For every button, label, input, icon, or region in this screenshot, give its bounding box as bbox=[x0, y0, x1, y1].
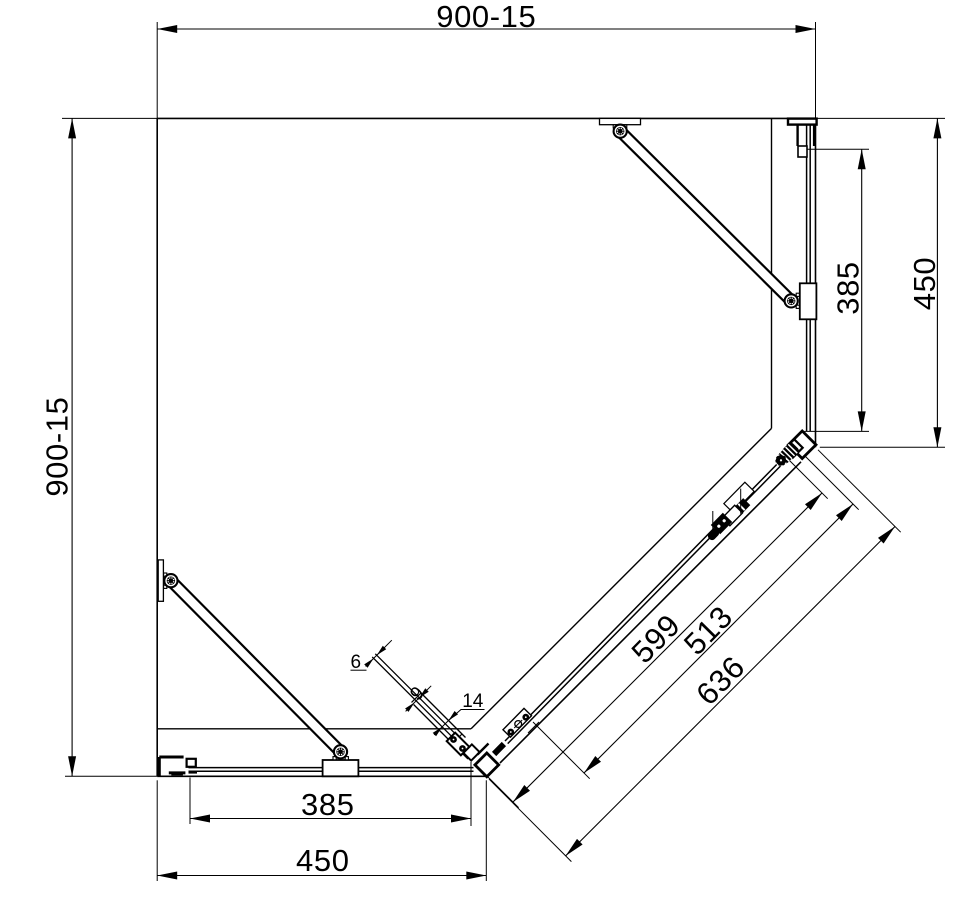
svg-text:385: 385 bbox=[831, 261, 866, 315]
svg-text:450: 450 bbox=[296, 843, 350, 878]
svg-text:14: 14 bbox=[462, 691, 484, 712]
svg-text:385: 385 bbox=[301, 787, 355, 822]
svg-text:900-15: 900-15 bbox=[39, 397, 74, 497]
svg-text:900-15: 900-15 bbox=[436, 0, 536, 34]
svg-text:450: 450 bbox=[907, 257, 942, 311]
